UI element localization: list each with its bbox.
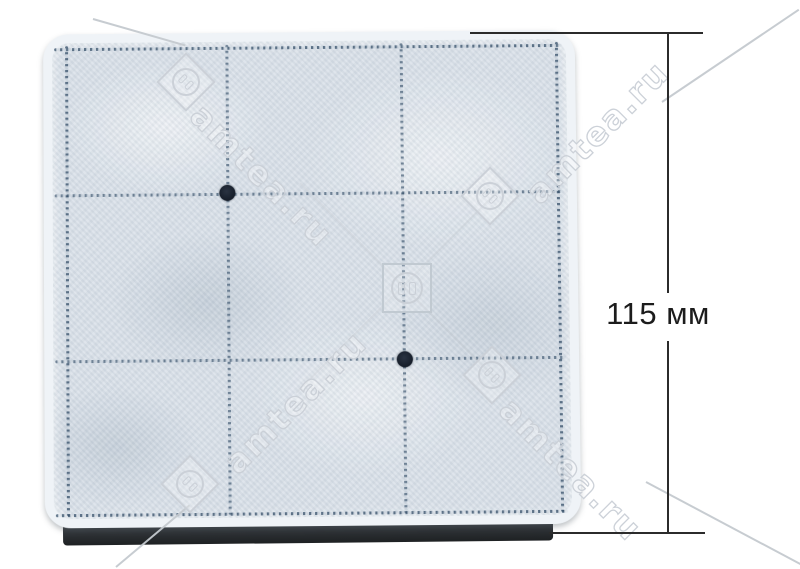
socket-diamond-icon (461, 167, 519, 225)
marker-dot (397, 351, 413, 367)
dimension-extension-line-bottom (549, 532, 705, 534)
product-photo: amtea.ru amtea.ru amtea.ru amtea.ru 115 … (0, 0, 800, 569)
filter-pad (43, 30, 581, 529)
dimension-label: 115 мм (603, 297, 713, 331)
socket-square-icon (382, 263, 432, 313)
dimension-line-upper (667, 33, 669, 293)
watermark-diagonal-line (661, 9, 799, 103)
dimension-line-lower (667, 341, 669, 534)
socket-diamond-icon (161, 455, 219, 513)
filter-pad-texture (52, 39, 572, 519)
marker-dot (219, 185, 235, 201)
